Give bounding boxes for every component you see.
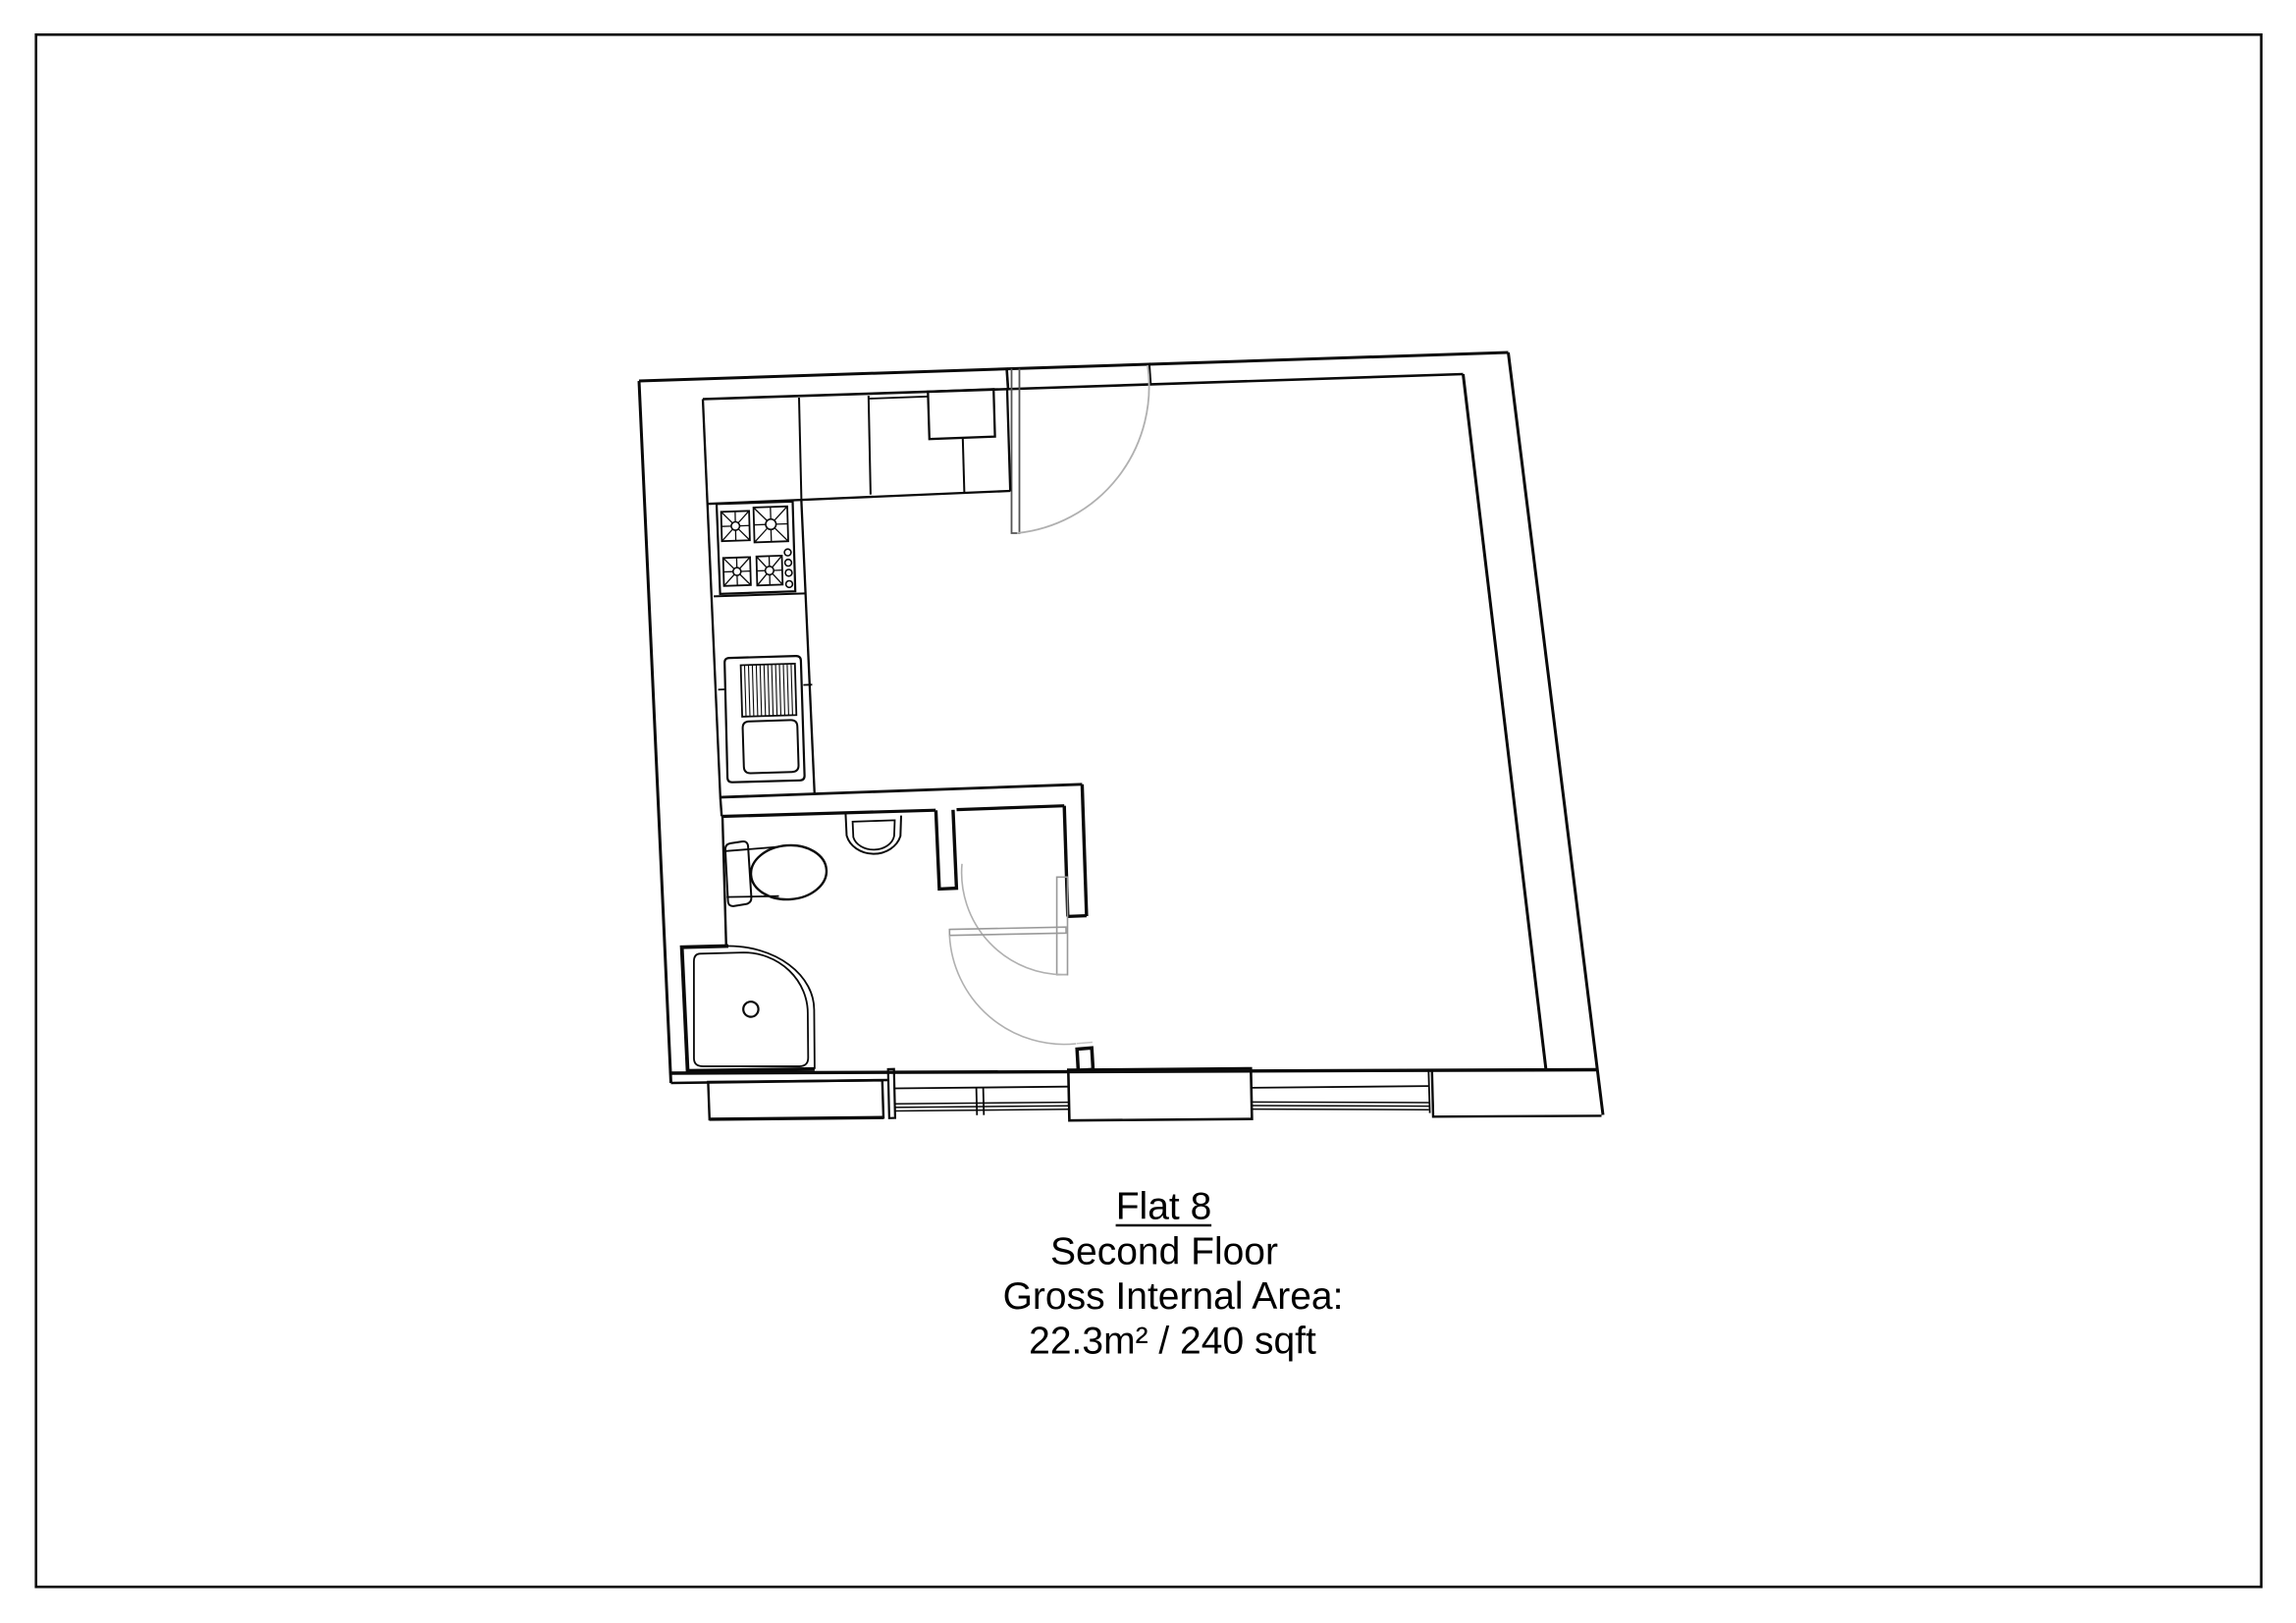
- svg-text:Flat 8: Flat 8: [1116, 1186, 1212, 1228]
- svg-text:Second Floor: Second Floor: [1050, 1230, 1278, 1272]
- svg-text:22.3m² / 240 sqft: 22.3m² / 240 sqft: [1029, 1320, 1316, 1362]
- svg-text:Gross Internal Area:: Gross Internal Area:: [1003, 1275, 1344, 1318]
